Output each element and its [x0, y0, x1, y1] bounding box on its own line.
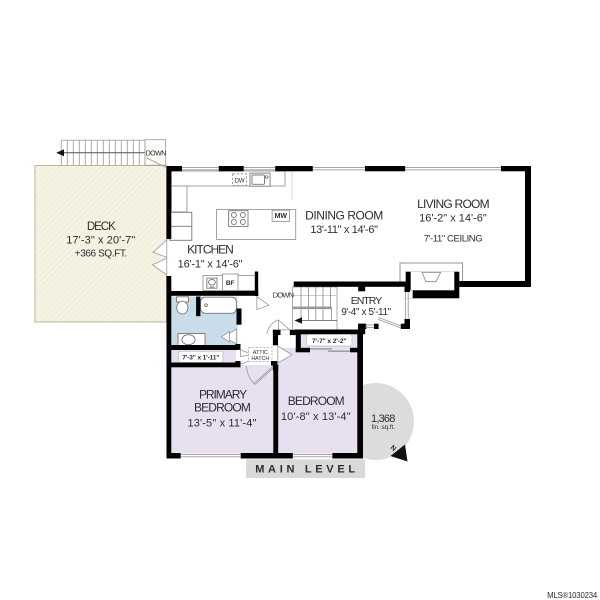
svg-text:ATTIC: ATTIC — [253, 350, 268, 356]
svg-text:DECK: DECK — [87, 221, 116, 233]
svg-text:MAIN LEVEL: MAIN LEVEL — [255, 464, 359, 476]
svg-text:BEDROOM: BEDROOM — [194, 401, 251, 415]
svg-text:13'-11" x 14'-6": 13'-11" x 14'-6" — [310, 224, 378, 236]
svg-text:13'-5" x 11'-4": 13'-5" x 11'-4" — [187, 417, 256, 429]
svg-text:16'-2" x 14'-6": 16'-2" x 14'-6" — [419, 212, 487, 224]
svg-text:DINING ROOM: DINING ROOM — [305, 208, 383, 222]
svg-text:ENTRY: ENTRY — [351, 295, 382, 307]
svg-text:fin. sq.ft.: fin. sq.ft. — [372, 424, 396, 431]
svg-text:+366 SQ.FT.: +366 SQ.FT. — [75, 248, 127, 259]
svg-text:17'-3" x 20'-7": 17'-3" x 20'-7" — [66, 235, 135, 247]
svg-text:7'-7" x 2'-2": 7'-7" x 2'-2" — [312, 338, 346, 345]
svg-text:10'-8" x 13'-4": 10'-8" x 13'-4" — [281, 411, 351, 423]
svg-text:KITCHEN: KITCHEN — [187, 242, 233, 256]
svg-text:PRIMARY: PRIMARY — [199, 388, 247, 402]
svg-text:MW: MW — [275, 213, 288, 220]
svg-text:MLS®1030234: MLS®1030234 — [547, 591, 598, 600]
svg-text:DOWN: DOWN — [146, 150, 167, 157]
svg-text:BEDROOM: BEDROOM — [288, 394, 345, 408]
svg-text:BF: BF — [226, 280, 235, 287]
svg-text:LIVING ROOM: LIVING ROOM — [417, 197, 490, 211]
svg-text:DOWN: DOWN — [273, 291, 294, 300]
svg-text:7'-11" CEILING: 7'-11" CEILING — [424, 234, 483, 245]
svg-text:HATCH: HATCH — [251, 356, 269, 362]
svg-text:9'-4" x 5'-11": 9'-4" x 5'-11" — [341, 307, 391, 318]
svg-text:DW: DW — [235, 178, 245, 184]
svg-text:7'-3" x 1'-11": 7'-3" x 1'-11" — [182, 355, 219, 362]
svg-text:16'-1" x 14'-6": 16'-1" x 14'-6" — [178, 258, 243, 270]
